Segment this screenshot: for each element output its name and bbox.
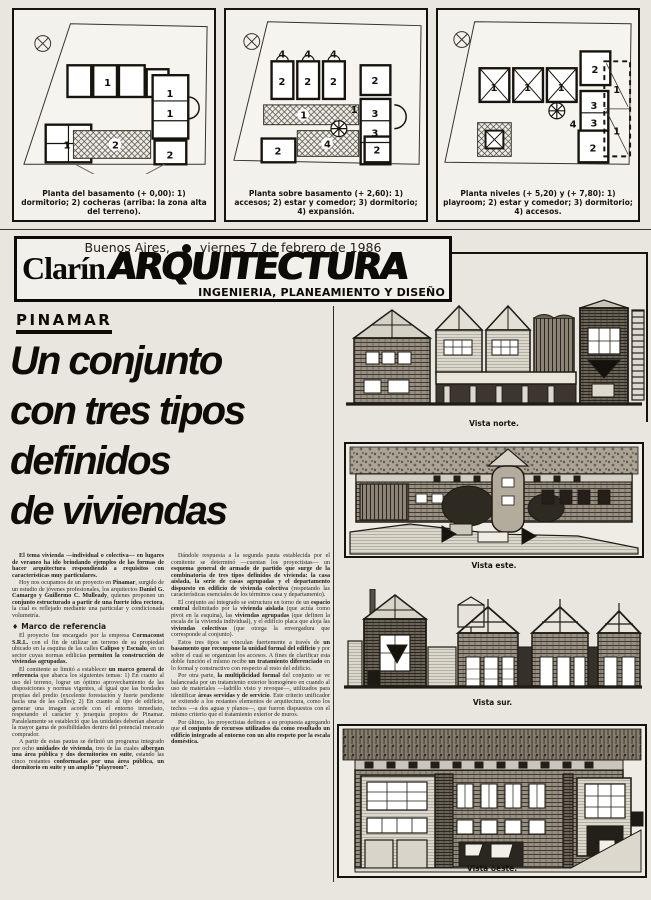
elevation-west-drawing xyxy=(339,726,645,876)
elevation-caption: Vista norte. xyxy=(340,419,648,428)
svg-text:1: 1 xyxy=(524,83,531,94)
article-paragraph: Por último, los proyectistas definen a s… xyxy=(171,720,330,746)
svg-text:2: 2 xyxy=(374,145,381,156)
svg-text:4: 4 xyxy=(570,120,577,131)
article-paragraph: Estos tres tipos se vinculan fuertemente… xyxy=(171,640,330,673)
article-paragraph: Dándole respuesta a la segunda pauta est… xyxy=(171,553,330,599)
article-paragraph: A partir de estas pautas se definió un p… xyxy=(12,739,164,772)
body-column-1: El tema vivienda —individual o colectiva… xyxy=(12,553,164,773)
article-paragraph: El proyecto fue encargado por la empresa… xyxy=(12,633,164,666)
svg-text:2: 2 xyxy=(372,76,379,87)
svg-text:2: 2 xyxy=(591,65,598,76)
svg-text:2: 2 xyxy=(330,77,337,88)
svg-text:1: 1 xyxy=(300,111,307,122)
svg-text:2: 2 xyxy=(589,143,596,154)
section-logo-arquitectura: ARQUITECTURA xyxy=(106,250,409,284)
article-paragraph: El conjunto así integrado se estructura … xyxy=(171,600,330,639)
elevation-east-drawing xyxy=(346,444,642,556)
brand-row: ClarínARQUITECTURA xyxy=(22,250,406,284)
body-column-2: Dándole respuesta a la segunda pauta est… xyxy=(171,553,330,747)
plan-caption: Planta niveles (+ 5,20) y (+ 7,80): 1) p… xyxy=(443,189,633,216)
elevation-south-drawing xyxy=(340,589,645,695)
article-paragraph: Por otra parte, la multiplicidad formal … xyxy=(171,673,330,719)
horizontal-rule xyxy=(0,229,651,230)
svg-text:2: 2 xyxy=(112,140,119,151)
floor-plan-basement: 1 1 1 2 1 2 Planta del basamento (+ 0,00… xyxy=(12,8,216,222)
article-paragraph: El comitente se limitó a establecer un m… xyxy=(12,667,164,739)
newspaper-page: 1 1 1 2 1 2 Planta del basamento (+ 0,00… xyxy=(0,0,651,900)
article-paragraph: Hoy nos ocupamos de un proyecto en Pinam… xyxy=(12,580,164,619)
figure-frame-top-rule xyxy=(452,252,648,254)
svg-text:1: 1 xyxy=(490,83,497,94)
svg-text:2: 2 xyxy=(275,146,282,157)
svg-text:1: 1 xyxy=(351,105,358,116)
elevation-west: Vista oeste. xyxy=(337,724,647,878)
compass-icon xyxy=(244,34,260,50)
svg-text:3: 3 xyxy=(590,119,597,130)
compass-icon xyxy=(35,36,51,52)
svg-text:1: 1 xyxy=(166,89,173,100)
plan-caption: Planta sobre basamento (+ 2,60): 1) acce… xyxy=(231,189,421,216)
svg-text:1: 1 xyxy=(613,127,620,138)
elevation-north-drawing xyxy=(340,298,648,416)
plan-caption: Planta del basamento (+ 0,00): 1) dormit… xyxy=(19,189,209,216)
diamond-bullet-icon: ♦ xyxy=(12,623,18,631)
svg-text:3: 3 xyxy=(372,109,379,120)
svg-text:1: 1 xyxy=(104,78,111,89)
elevation-east: Vista este. xyxy=(344,442,644,558)
floor-plan-basement-drawing: 1 1 1 2 1 2 xyxy=(16,12,214,174)
article-headline: Un conjunto con tres tipos definidos de … xyxy=(10,336,335,536)
floor-plan-upper-levels: 1 1 1 2 3 3 4 2 1 1 Planta niveles (+ 5,… xyxy=(436,8,640,222)
headline-line: con tres tipos xyxy=(10,386,335,436)
svg-text:1: 1 xyxy=(166,109,173,120)
floor-plan-upper-levels-drawing: 1 1 1 2 3 3 4 2 1 1 xyxy=(440,12,638,174)
svg-text:4: 4 xyxy=(324,139,331,150)
svg-text:1: 1 xyxy=(558,83,565,94)
brand-clarin: Clarín xyxy=(22,250,105,286)
svg-text:4: 4 xyxy=(278,49,285,60)
masthead: Buenos Aires,viernes 7 de febrero de 198… xyxy=(14,236,452,302)
floor-plan-over-basement: 4 4 4 2 2 2 1 2 1 3 3 4 2 2 Planta sobre… xyxy=(224,8,428,222)
headline-line: Un conjunto xyxy=(10,336,335,386)
section-kicker: PINAMAR xyxy=(16,311,112,334)
svg-text:4: 4 xyxy=(330,49,337,60)
svg-text:3: 3 xyxy=(590,101,597,112)
svg-text:2: 2 xyxy=(304,77,311,88)
elevation-north: Vista norte. xyxy=(340,298,648,428)
svg-text:4: 4 xyxy=(304,49,311,60)
svg-text:1: 1 xyxy=(64,140,71,151)
compass-icon xyxy=(454,32,470,48)
elevation-caption: Vista sur. xyxy=(340,698,645,707)
headline-line: definidos xyxy=(10,436,335,486)
section-subhead: ♦Marco de referencia xyxy=(12,622,164,631)
svg-text:3: 3 xyxy=(372,129,379,140)
article-paragraph: El tema vivienda —individual o colectiva… xyxy=(12,553,164,579)
elevation-caption: Vista este. xyxy=(346,561,642,570)
headline-line: de viviendas xyxy=(10,486,335,536)
svg-text:2: 2 xyxy=(166,150,173,161)
elevation-caption: Vista oeste. xyxy=(339,864,645,873)
svg-text:1: 1 xyxy=(613,85,620,96)
svg-text:2: 2 xyxy=(278,77,285,88)
elevation-south: Vista sur. xyxy=(340,589,645,707)
floor-plan-over-basement-drawing: 4 4 4 2 2 2 1 2 1 3 3 4 2 2 xyxy=(228,12,426,174)
column-rule xyxy=(333,306,334,882)
